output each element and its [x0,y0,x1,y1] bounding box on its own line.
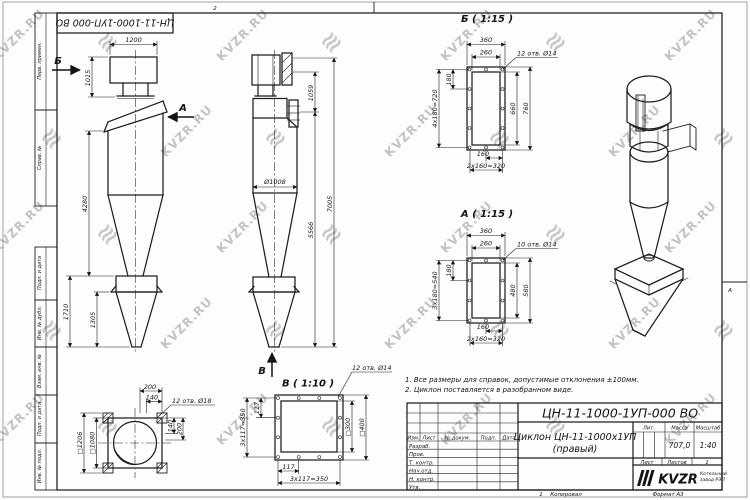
dim-1305: 1305 [89,312,97,329]
dim-a-360: 360 [480,227,492,235]
dim-b-760: 760 [522,102,530,114]
dim-a-260: 260 [480,240,492,248]
dim-a-540: 3x180=540 [431,271,439,309]
dim-4280: 4280 [81,196,89,213]
dim-5566: 5566 [307,222,315,239]
dim-b-320: 2x160=320 [467,162,505,170]
title-block: ЦН-11-1000-1УП-000 ВО Циклон ЦН-11-1000х… [407,403,727,491]
footer-num: 1 [539,492,543,498]
notes: 1. Все размеры для справок, допустимые о… [405,376,639,394]
company-line2: завод РЭП [700,477,725,483]
sheet-frame: 2 А ЦН-11-1000-1УП-000 ВО [3,2,747,497]
top-view-holes-callout: 12 отв. Ø18 [172,397,211,405]
dim-dia-1008: Ø1008 [263,178,286,186]
detail-a-bolt-holes [468,259,504,322]
title-block-doc-no: ЦН-11-1000-1УП-000 ВО [542,406,698,421]
row-utv: Утв. [409,485,420,491]
mass-value: 707,0 [669,441,691,450]
dim-b-160: 160 [477,150,489,158]
strip-label-inv-dubl: Инв. № дубл. [37,306,43,340]
dim-a-160: 160 [477,323,489,331]
dim-v-sq400: □400 [358,418,366,437]
dim-top-140: 140 [146,394,158,402]
zone-letter-right: А [727,288,732,294]
sheets-value: 1 [705,460,708,466]
col-header-list: Лист [421,435,436,441]
strip-label-podp1: Подп. и дата [37,256,43,290]
zone-number-top: 2 [213,6,217,12]
drawing-sheet: KVZR.RU≋KVZR.RU≋KVZR.RU≋KVZR.RU≋KVZR.RU≋… [0,0,750,500]
row-tkontr: Т. контр. [409,460,434,466]
title-block-name-line2: (правый) [553,444,598,455]
dim-a-580: 580 [522,284,530,296]
dim-top-140-right: 140 [167,420,175,432]
dim-v-350-left: 3x117=350 [239,408,247,446]
title-block-name-line1: Циклон ЦН-11-1000х1УП [514,432,637,443]
dim-top-sq1080: □1080 [89,432,97,455]
strip-label-vzam: Взам. инв. № [37,354,43,388]
strip-label-inv-podl: Инв. № подл. [37,449,43,484]
detail-b-holes-callout: 12 отв. Ø14 [517,50,556,58]
detail-b-bolt-holes [468,68,504,149]
detail-a-holes-callout: 10 отв. Ø14 [517,241,556,249]
detail-b-title: Б ( 1:15 ) [461,14,513,25]
detail-v-title: В ( 1:10 ) [282,379,334,390]
kvzr-logo-icon [637,470,655,486]
engineering-drawing: 2 А ЦН-11-1000-1УП-000 ВО Перв. примен. … [0,0,750,500]
footer-copy-label: Копировал [550,492,582,498]
dim-b-180: 180 [445,73,453,85]
view-arrow-label-b: Б [54,56,62,67]
dim-1015: 1015 [84,70,92,87]
strip-label-perv: Перв. примен. [37,42,43,80]
dim-1059: 1059 [307,85,315,102]
mass-label: Масса [671,426,688,432]
dim-7005: 7005 [326,196,334,213]
row-prov: Пров. [409,452,425,458]
dim-a-180: 180 [445,264,453,276]
dim-1710: 1710 [62,304,70,321]
view-arrow-label-a: А [178,103,187,114]
strip-label-podp2: Подп. и дата [37,402,43,436]
isometric-view [610,76,696,336]
dim-v-117-bottom: 117 [282,463,295,471]
dim-b-360: 360 [480,36,492,44]
kvzr-logo-text: KVZR [658,473,698,488]
front-view: 1200 1015 4280 1710 1305 Б А [52,36,194,354]
dim-top-200-right: 200 [176,423,184,435]
col-header-dokum: № докум. [444,435,471,441]
sheets-label: Листов [666,460,686,466]
detail-a-title: А ( 1:15 ) [460,209,513,220]
detail-v-holes-callout: 12 отв. Ø14 [352,364,391,372]
col-header-data: Дата [501,435,515,441]
company-line1: Котельный [700,471,727,477]
note-1: 1. Все размеры для справок, допустимые о… [405,376,639,384]
dim-a-480: 480 [509,284,517,296]
col-header-podp: Подп. [481,435,497,441]
footer-format-label: Формат А3 [652,492,684,498]
dim-v-117-left: 117 [253,401,261,414]
note-2: 2. Циклон поставляется в разобранном вид… [405,386,573,394]
dim-top-200: 200 [144,383,156,391]
left-stamp-strip: Перв. примен. Справ. № Подп. и дата Инв.… [35,13,57,490]
top-stamp-doc-no: ЦН-11-1000-1УП-000 ВО [55,17,174,28]
row-razrab: Разраб. [409,444,430,450]
detail-view-v: В ( 1:10 ) 12 отв. Ø14 117 3x117=350 □30… [239,364,392,486]
view-arrow-label-v: В [258,366,266,377]
dim-b-720: 4x180=720 [431,89,439,127]
dim-b-660: 660 [509,102,517,114]
detail-v-bolt-holes [277,397,342,459]
top-view: 200 140 12 отв. Ø18 □1206 □1080 140 200 [76,383,215,478]
strip-label-sprav: Справ. № [37,146,43,170]
dim-1200: 1200 [125,36,142,44]
detail-view-b: Б ( 1:15 ) 360 260 12 отв. Ø14 180 [431,14,558,173]
row-nkontr: Н. контр. [409,477,435,483]
scale-label: Масштаб [696,426,721,432]
dim-v-350-bottom: 3x117=350 [290,475,328,483]
col-header-izm: Изм. [407,435,419,441]
dim-a-320: 2x160=320 [467,335,505,343]
side-view: Ø1008 1059 5566 7005 В [249,50,337,377]
detail-view-a: А ( 1:15 ) 360 260 10 отв. Ø14 180 [431,209,558,346]
dim-top-sq1206: □1206 [76,432,84,455]
dim-b-260: 260 [480,49,492,57]
lit-label: Лит. [642,426,655,432]
scale-value: 1:40 [700,441,717,450]
dim-v-sq300: □300 [344,418,352,437]
sheet-label: Лист [639,460,654,466]
row-nachotd: Нач.отд. [409,469,433,475]
